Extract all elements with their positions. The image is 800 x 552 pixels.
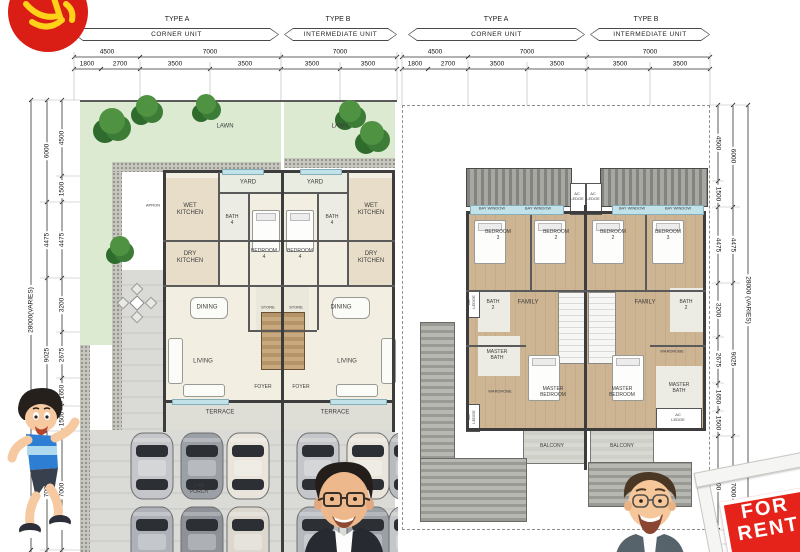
ground-type-b-title: TYPE B <box>326 16 351 23</box>
dim: 7000 <box>518 49 536 56</box>
dim: 4475 <box>44 231 51 249</box>
room-label-ac-ledge-top-a: AC LEDGE <box>570 192 584 202</box>
room-label-dry-kitchen-b: DRY KITCHEN <box>358 251 384 265</box>
room-label-balcony-b: BALCONY <box>610 443 634 449</box>
room-label-ac-ledge-a: AC LEDGE <box>467 295 477 309</box>
room-label-store-a: STORE <box>261 306 275 311</box>
dim: 3500 <box>488 61 506 68</box>
dim: 4475 <box>715 236 722 254</box>
room-label-foyer-a: FOYER <box>254 384 271 390</box>
room-label-wet-kitchen-a: WET KITCHEN <box>177 203 203 217</box>
room-label-bay-window: BAY WINDOW <box>525 207 551 212</box>
floorplan-canvas: TYPE A CORNER UNIT TYPE B INTERMEDIATE U… <box>0 0 800 552</box>
room-label-bedroom2-a: BEDROOM 2 <box>543 229 569 241</box>
room-label-bath-a: BATH 4 <box>226 214 239 226</box>
dim: 1500 <box>59 180 66 198</box>
first-band-corner-unit: CORNER UNIT <box>408 28 585 41</box>
room-label-wardrobe-a: WARDROBE <box>488 390 511 395</box>
first-type-a-title: TYPE A <box>484 16 509 23</box>
dim: 4475 <box>59 231 66 249</box>
room-label-balcony-a: BALCONY <box>540 443 564 449</box>
room-label-bedroom3-a: BEDROOM 3 <box>485 229 511 241</box>
room-label-yard-b: YARD <box>307 179 323 186</box>
room-label-car-porch-a: CAR PORCH <box>190 483 208 495</box>
dim: 3200 <box>715 301 722 319</box>
room-label-master-bedroom-a: MASTER BEDROOM <box>540 386 566 398</box>
room-label-family-a: FAMILY <box>518 299 539 306</box>
dim: 9025 <box>730 350 737 368</box>
room-label-terrace-b: TERRACE <box>321 409 350 416</box>
room-label-wet-kitchen-b: WET KITCHEN <box>358 203 384 217</box>
outdoor-table <box>117 283 156 322</box>
dim: 3500 <box>611 61 629 68</box>
dim: 1500 <box>715 414 722 432</box>
ground-band-corner-unit: CORNER UNIT <box>74 28 279 41</box>
room-label-bedroom4-b: BEDROOM 4 <box>287 248 313 260</box>
dim: 7000 <box>201 49 219 56</box>
room-label-foyer-b: FOYER <box>292 384 309 390</box>
room-label-family-b: FAMILY <box>635 299 656 306</box>
dim: 4500 <box>98 49 116 56</box>
dim: 2700 <box>111 61 129 68</box>
room-label-master-bedroom-b: MASTER BEDROOM <box>609 386 635 398</box>
dim: 4500 <box>59 129 66 147</box>
room-label-lawn-a: LAWN <box>216 123 233 130</box>
first-type-b-title: TYPE B <box>634 16 659 23</box>
dim: 1800 <box>78 61 96 68</box>
room-label-bay-window: BAY WINDOW <box>665 207 691 212</box>
dim: 4500 <box>426 49 444 56</box>
dim: 1650 <box>715 388 722 406</box>
dim: 3200 <box>59 296 66 314</box>
room-label-ac-ledge-b: AC LEDGE <box>671 413 685 423</box>
dim: 7000 <box>641 49 659 56</box>
dim: 6000 <box>730 147 737 165</box>
room-label-yard-a: YARD <box>240 179 256 186</box>
room-label-dry-kitchen-a: DRY KITCHEN <box>177 251 203 265</box>
room-label-terrace-a: TERRACE <box>206 409 235 416</box>
agent-avatar <box>600 462 704 552</box>
room-label-master-bath-b: MASTER BATH <box>669 382 690 394</box>
dim: 1500 <box>715 185 722 203</box>
room-label-living-a: LIVING <box>193 358 213 365</box>
room-label-dining-a: DINING <box>197 304 218 311</box>
dim: 7000 <box>331 49 349 56</box>
dim: 2675 <box>59 346 66 364</box>
dim: 2700 <box>439 61 457 68</box>
dim: 3500 <box>166 61 184 68</box>
room-label-bedroom3-b: BEDROOM 3 <box>655 229 681 241</box>
room-label-wardrobe-b: WARDROBE <box>660 350 683 355</box>
first-band-intermediate-unit: INTERMEDIATE UNIT <box>590 28 710 41</box>
room-label-apron: APRON <box>146 204 160 209</box>
dim: 4500 <box>715 134 722 152</box>
dim: 3500 <box>359 61 377 68</box>
agent-photo <box>285 456 403 552</box>
room-label-bay-window: BAY WINDOW <box>479 207 505 212</box>
dim: 3500 <box>548 61 566 68</box>
room-label-bath2-a: BATH 2 <box>487 299 500 311</box>
dim: 3500 <box>671 61 689 68</box>
room-label-bay-window: BAY WINDOW <box>619 207 645 212</box>
ground-type-a-title: TYPE A <box>165 16 190 23</box>
dim: 4475 <box>730 236 737 254</box>
room-label-master-bath-a: MASTER BATH <box>487 349 508 361</box>
ground-band-intermediate-unit: INTERMEDIATE UNIT <box>284 28 397 41</box>
room-label-dining-b: DINING <box>331 304 352 311</box>
room-label-bath-b: BATH 4 <box>326 214 339 226</box>
running-boy-illustration <box>0 380 92 552</box>
dim: 7000 <box>730 481 737 499</box>
dim-total-right: 28000 (VARIES) <box>745 274 752 326</box>
room-label-lawn-b: LAWN <box>331 123 348 130</box>
room-label-bedroom4-a: BEDROOM 4 <box>251 248 277 260</box>
dim: 3500 <box>236 61 254 68</box>
room-label-bedroom2-b: BEDROOM 2 <box>600 229 626 241</box>
dim: 1800 <box>406 61 424 68</box>
room-label-living-b: LIVING <box>337 358 357 365</box>
dim-total-left: 28000(VARIES) <box>28 285 35 335</box>
room-label-ac-ledge-top-b: AC LEDGE <box>586 192 600 202</box>
room-label-store-b: STORE <box>289 306 303 311</box>
red-seal-badge <box>6 0 90 54</box>
dim: 3500 <box>303 61 321 68</box>
dim: 9025 <box>44 346 51 364</box>
room-label-ac-ledge-a2: AC LEDGE <box>467 410 477 424</box>
dim: 2675 <box>715 351 722 369</box>
room-label-bath2-b: BATH 2 <box>680 299 693 311</box>
dim: 6000 <box>44 142 51 160</box>
